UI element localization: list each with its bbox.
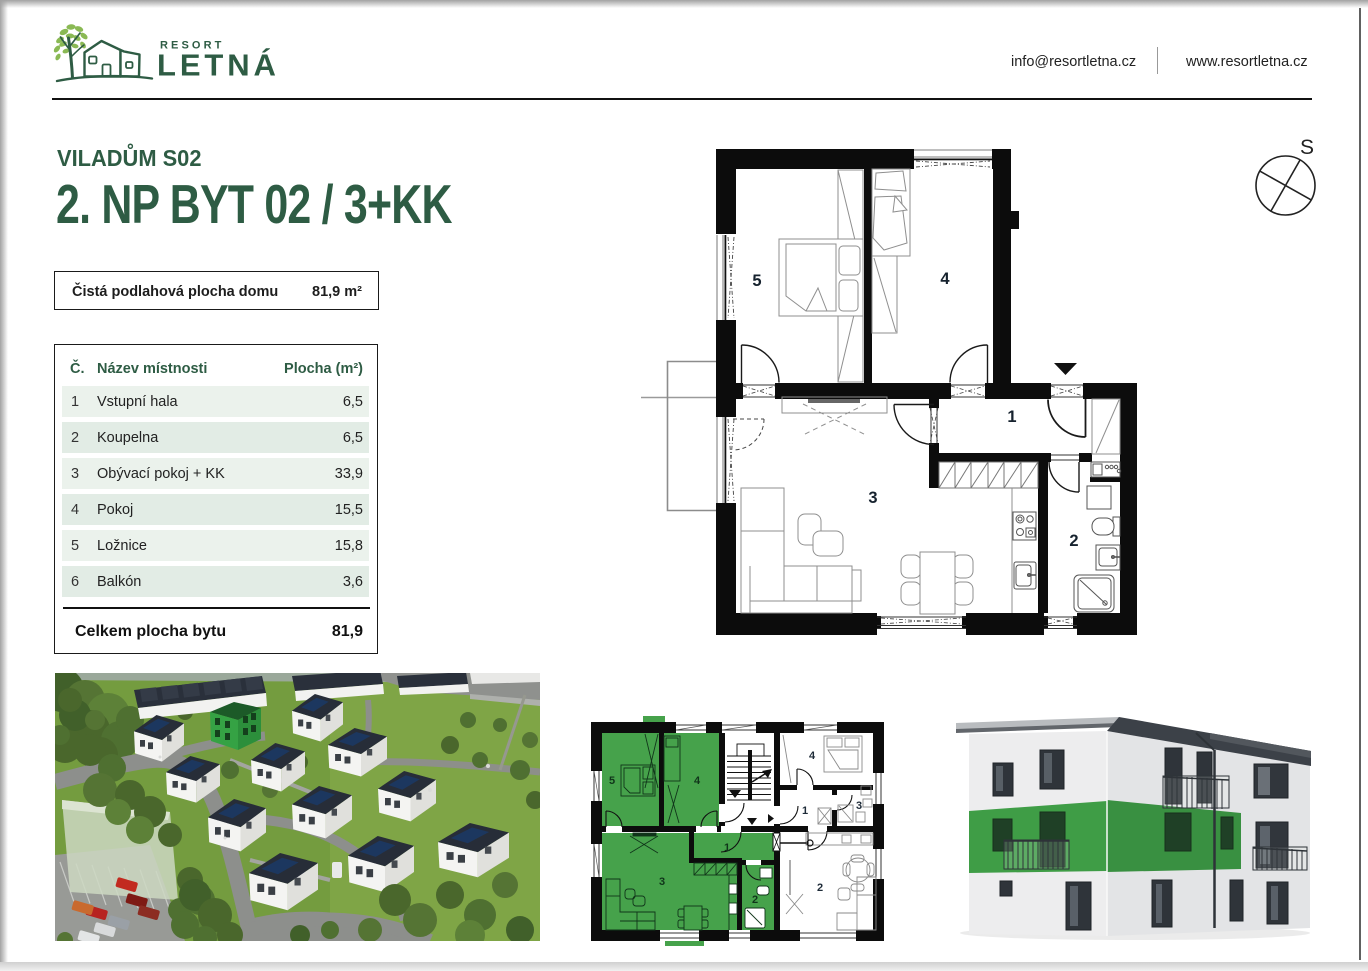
svg-text:4: 4 xyxy=(809,750,816,762)
svg-text:2: 2 xyxy=(817,882,823,894)
svg-text:LETNÁ: LETNÁ xyxy=(157,48,280,83)
svg-text:S: S xyxy=(1300,136,1314,159)
svg-text:4: 4 xyxy=(940,270,950,288)
svg-text:1: 1 xyxy=(724,842,730,854)
svg-text:5: 5 xyxy=(752,272,761,290)
svg-text:3: 3 xyxy=(659,876,665,888)
svg-text:2: 2 xyxy=(752,894,758,906)
svg-text:1: 1 xyxy=(1007,408,1016,426)
svg-text:4: 4 xyxy=(694,775,701,787)
svg-text:1: 1 xyxy=(802,805,808,817)
svg-text:2: 2 xyxy=(1069,532,1078,550)
svg-text:3: 3 xyxy=(856,800,862,812)
svg-text:3: 3 xyxy=(868,489,877,507)
svg-text:5: 5 xyxy=(609,775,615,787)
